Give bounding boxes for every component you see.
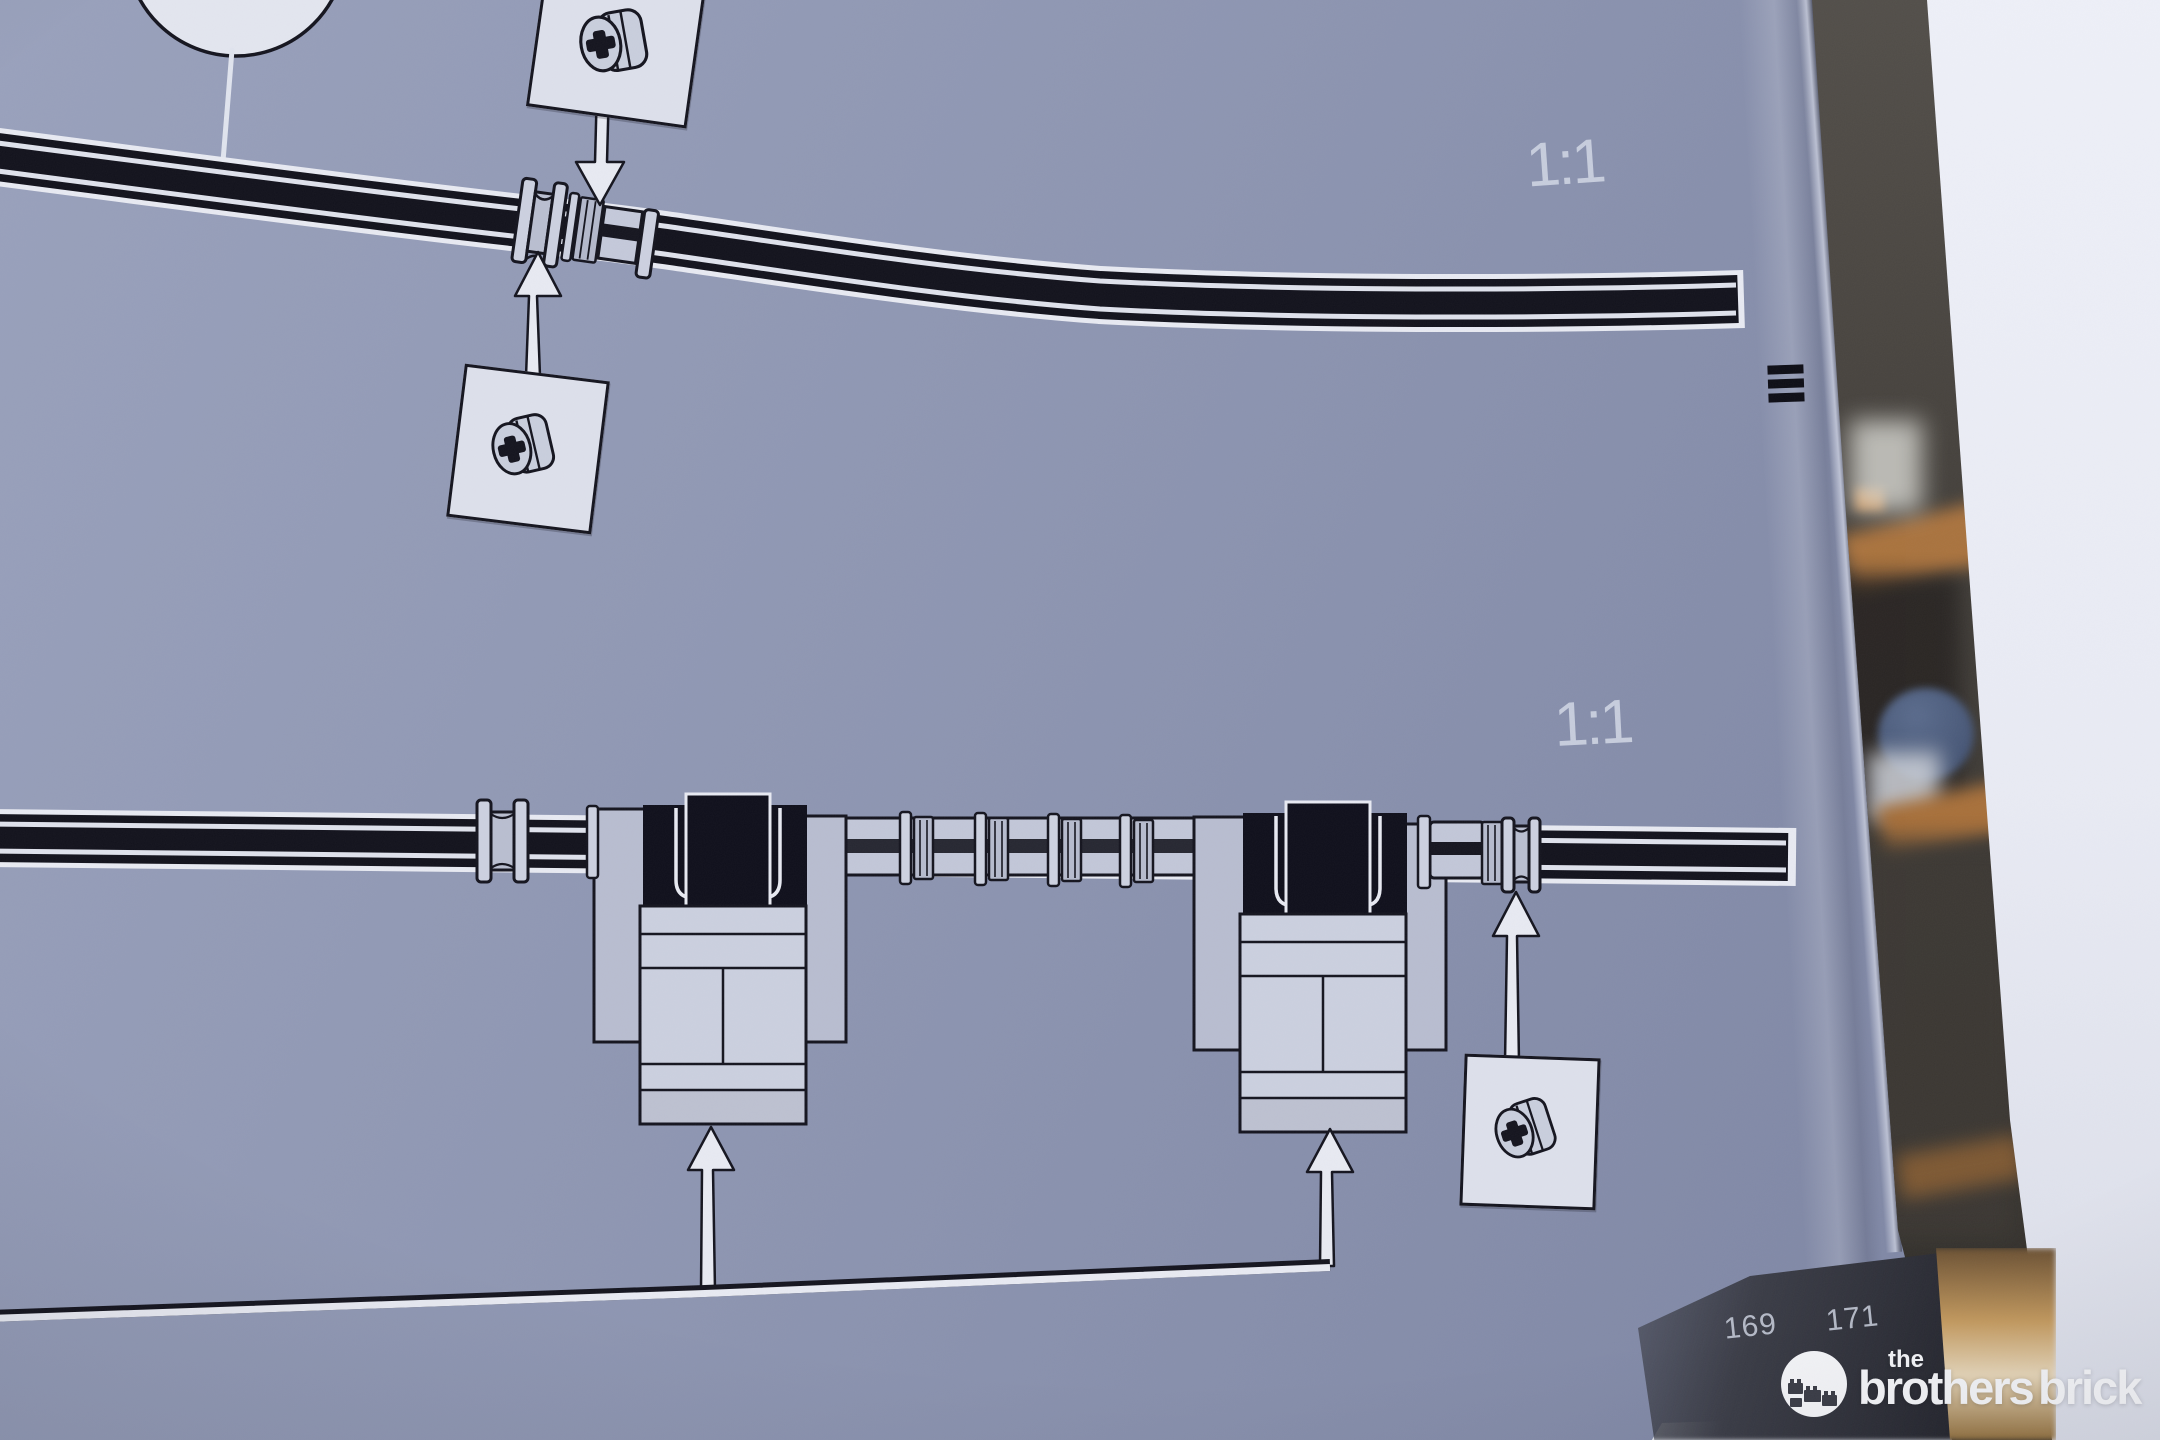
- arrow-up-to-top-bush: [515, 252, 561, 376]
- bush-groove: [1514, 826, 1529, 882]
- scale-label-top: 1:1: [1524, 125, 1606, 201]
- bush-part-icon: [559, 0, 675, 94]
- ring-group: [1048, 814, 1081, 886]
- callout-box-bottom: [1459, 1054, 1600, 1211]
- bush-flange: [1529, 818, 1540, 892]
- connector-line-white: [0, 1268, 1330, 1319]
- bush-flange: [514, 800, 528, 882]
- ring-group: [900, 812, 933, 884]
- thin-ring: [587, 806, 598, 878]
- brothers-brick-logo-icon: [1780, 1350, 1848, 1418]
- brothers-brick-watermark: the brothers brick: [1770, 1338, 2160, 1438]
- ring-group: [1120, 815, 1153, 887]
- bush-part-icon: [474, 399, 582, 498]
- photo-of-lego-instruction-page: 1:1 1:1 169 171 the brother: [0, 0, 2160, 1440]
- ribbed-ring: [1482, 822, 1502, 884]
- sleeve-axle-stripe: [1430, 842, 1484, 855]
- bush-part-icon: [1482, 1087, 1579, 1176]
- thin-ring: [1418, 816, 1430, 888]
- balloon-circle: [126, 0, 346, 56]
- watermark-word-brothers: brothers: [1858, 1360, 2033, 1415]
- top-axle: [0, 142, 1744, 317]
- scale-label-bottom: 1:1: [1552, 686, 1633, 761]
- arrow-up-to-right-bush: [1493, 892, 1539, 1062]
- connector-line: [0, 1265, 1330, 1319]
- watermark-word-brick: brick: [2038, 1360, 2140, 1415]
- crank-web-2: [1194, 802, 1446, 1132]
- arrow-up-to-crank-1: [688, 1127, 734, 1290]
- bush-flange: [477, 800, 491, 882]
- bush-flange: [1502, 818, 1514, 892]
- callout-box-top: [526, 0, 708, 129]
- crank-web-1: [594, 794, 846, 1124]
- left-flanged-bush: [477, 800, 528, 882]
- page-edge-axle-marks: [1767, 364, 1804, 402]
- callout-box-middle: [446, 364, 610, 535]
- arrow-up-to-crank-2: [1307, 1129, 1353, 1266]
- bush-groove: [491, 812, 514, 870]
- ring-group: [975, 813, 1008, 885]
- page-number-right: 171: [1824, 1299, 1880, 1338]
